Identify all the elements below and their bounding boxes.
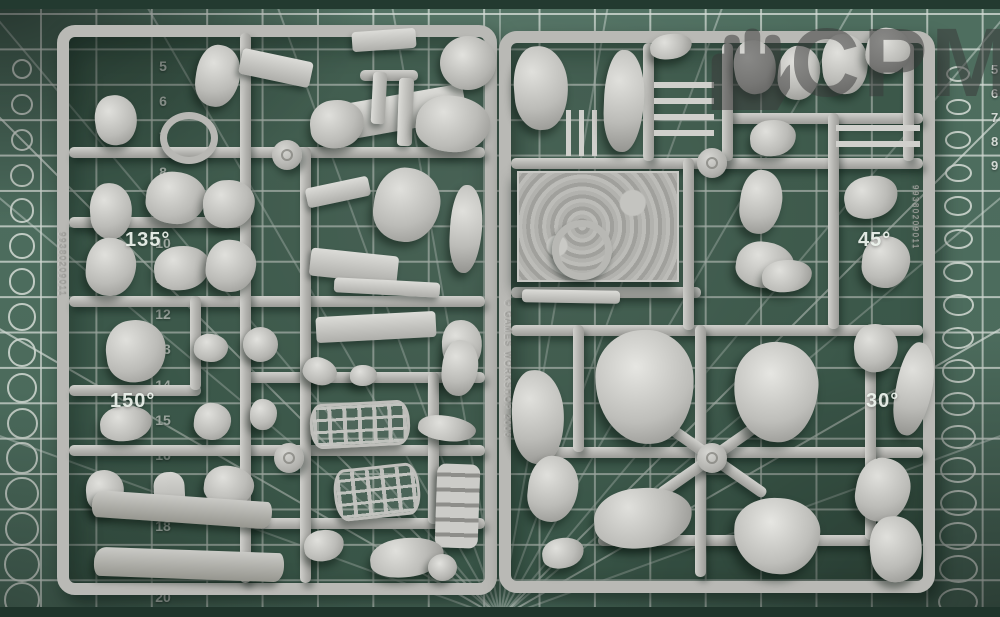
photo-cutting-mat-with-sprues: 56789101112131415161718192056789 9938020… [0,0,1000,617]
mat-circle-mark [11,94,32,115]
mat-ellipse-mark [944,229,973,249]
mat-ellipse-mark [942,359,975,382]
part-long-blade [397,78,414,146]
mat-right-number: 9 [991,158,998,173]
mat-right-number: 5 [991,62,998,77]
part-dagger [371,72,388,125]
mat-circle-mark [7,373,37,403]
mat-ellipse-mark [941,392,975,416]
part-cage-large [332,462,423,523]
angle-label: 30° [866,390,899,413]
mat-circle-mark [8,338,37,367]
part-blade-pair [836,120,920,147]
part-wreath-ring [160,112,218,164]
mat-circle-mark [5,477,38,510]
sprue-molded-text: © GAMES WORKSHOP 2006 [503,300,512,438]
part-wheel-small [428,554,457,581]
mat-ellipse-mark [942,327,974,349]
sprue-connector-disc [697,443,727,473]
mat-circle-mark [9,233,35,259]
part-spiked-ball [243,327,278,362]
mat-circle-mark [11,129,33,151]
mat-circle-mark [12,59,32,79]
mat-ellipse-mark [939,555,978,583]
mat-circle-mark [10,198,34,222]
mat-ellipse-mark [945,164,972,182]
mat-circle-mark [9,268,36,295]
sprue-molded-text: 99380209011 [911,185,920,250]
mat-ellipse-mark [941,425,976,450]
mat-ellipse-mark [946,99,971,116]
mat-right-number: 7 [991,110,998,125]
mat-right-number: 6 [991,86,998,101]
mat-ellipse-mark [940,490,977,516]
sprue-connector-disc [697,148,727,178]
angle-label: 150° [110,390,155,413]
sprue-bar [69,296,485,307]
mat-ellipse-mark [940,457,976,483]
sprue-bar [573,325,584,452]
mat-ellipse-mark [945,131,971,149]
mat-ellipse-mark [946,66,970,82]
angle-label: 135° [125,229,170,252]
mat-circle-mark [8,303,36,331]
mat-top-edge [0,0,1000,9]
mat-right-number: 8 [991,134,998,149]
sprue-bar [643,43,654,161]
part-blade-rack [654,72,714,136]
sprue-connector-disc [274,443,304,473]
sprue-connector-disc [272,140,302,170]
part-pitchfork [522,289,620,304]
mat-ellipse-mark [939,522,977,549]
part-barrel-stack [435,463,481,548]
part-cage-small [309,399,411,449]
sprue-molded-text: 99380209011 [57,232,66,297]
mat-circle-mark [4,547,39,582]
angle-label: 45° [858,229,891,252]
part-round-shield [440,36,496,90]
mat-bottom-edge [0,607,1000,617]
sprue-bar [722,43,733,161]
sprue-bar [683,158,694,330]
mat-ellipse-mark [943,294,974,316]
part-candles [566,110,598,156]
mat-circle-mark [10,164,33,187]
part-wheel-relief [552,220,612,280]
mat-circle-mark [7,408,38,439]
mat-ellipse-mark [944,196,972,215]
